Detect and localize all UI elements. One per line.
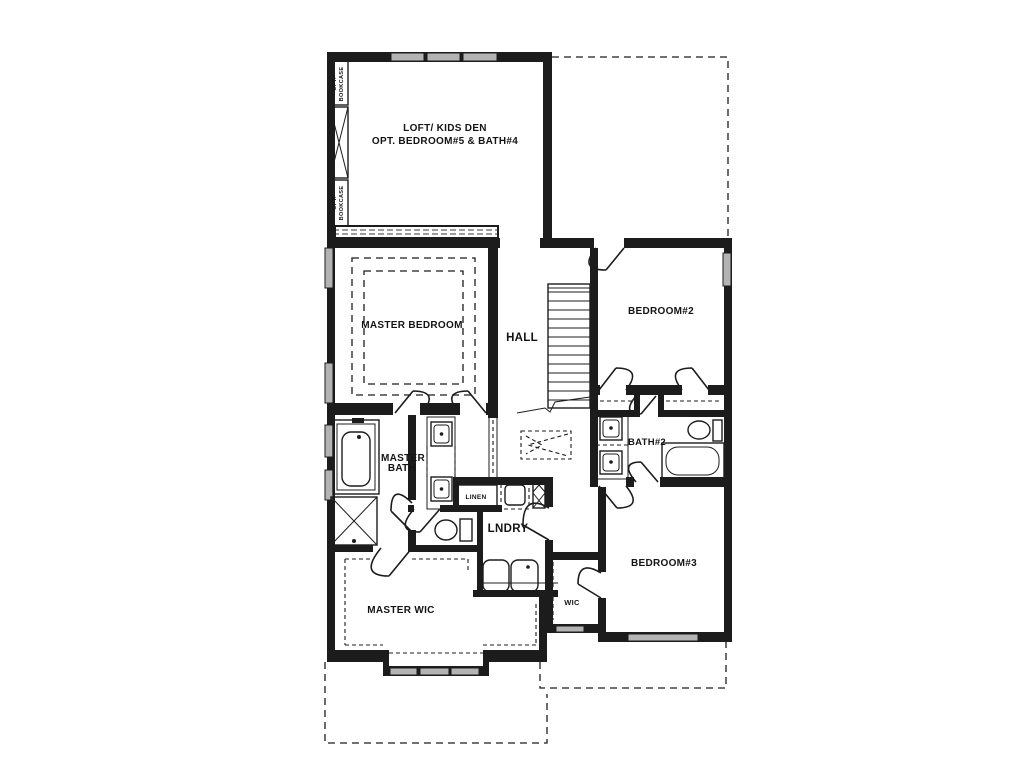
bedroom2-window (723, 253, 731, 286)
master-wic-door (371, 548, 412, 576)
bedroom2-closet-door-right (675, 368, 709, 390)
bedroom2-label: BEDROOM#2 (628, 306, 694, 317)
bath2-toilet (688, 420, 722, 441)
laundry-sink (501, 481, 529, 509)
master-wic-label: MASTER WIC (367, 605, 434, 616)
floor-plan-drawing: LOFT/ KIDS DEN OPT. BEDROOM#5 & BATH#4 O… (0, 0, 1024, 768)
bath2-label: BATH#2 (628, 437, 666, 448)
plant-shelf (335, 226, 498, 238)
loft-label-line2: OPT. BEDROOM#5 & BATH#4 (372, 136, 518, 147)
master-bath-window (325, 425, 333, 457)
roof-below-outline-right (540, 642, 726, 688)
loft-window (463, 53, 497, 61)
room-labels: LOFT/ KIDS DEN OPT. BEDROOM#5 & BATH#4 O… (332, 67, 697, 616)
bay-window (451, 668, 479, 675)
attic-access (521, 431, 571, 459)
master-bedroom-label: MASTER BEDROOM (361, 320, 462, 331)
master-bath-door (391, 494, 412, 532)
open-area-outline (552, 57, 728, 238)
hall-label: HALL (506, 332, 538, 344)
bedroom2-closet-door-left (599, 368, 633, 390)
master-vanity-sinks (427, 417, 455, 509)
laundry-label: LNDRY (488, 523, 529, 535)
stair-break-line (517, 396, 597, 413)
wic-window (556, 626, 584, 632)
master-bedroom-window (325, 363, 333, 403)
bath2-vanity-sinks (596, 413, 628, 479)
floor-plan-page: LOFT/ KIDS DEN OPT. BEDROOM#5 & BATH#4 O… (0, 0, 1024, 768)
bedroom3-label: BEDROOM#3 (631, 558, 697, 569)
master-bath-window (325, 470, 333, 500)
wic-door (578, 568, 601, 598)
bay-window (420, 668, 449, 675)
master-toilet (435, 519, 472, 541)
loft-label-line1: LOFT/ KIDS DEN (403, 123, 487, 134)
linen-label: LINEN (466, 494, 487, 501)
master-shower (331, 497, 377, 545)
bath2-door (629, 462, 658, 482)
bookcase-top-label-line1: OPT. (332, 77, 338, 91)
master-bath-label-line2: BATH (388, 463, 416, 474)
loft-window (427, 53, 460, 61)
master-bedroom-door-left (395, 391, 429, 413)
bath2-bathtub (662, 443, 724, 479)
loft-window (391, 53, 424, 61)
wic-label: WIC (564, 598, 580, 607)
bookcase-top-label-line2: BOOKCASE (339, 67, 345, 102)
master-bathtub (333, 418, 379, 494)
bedroom3-window (628, 634, 698, 641)
staircase (517, 284, 597, 413)
bookcase-bottom-label-line1: OPT. (332, 196, 338, 210)
master-bedroom-window (325, 248, 333, 288)
cased-opening-frame (489, 416, 497, 478)
bookcase-bottom-label-line2: BOOKCASE (339, 186, 345, 221)
bay-window (390, 668, 417, 675)
master-bedroom-door-right (452, 391, 486, 413)
